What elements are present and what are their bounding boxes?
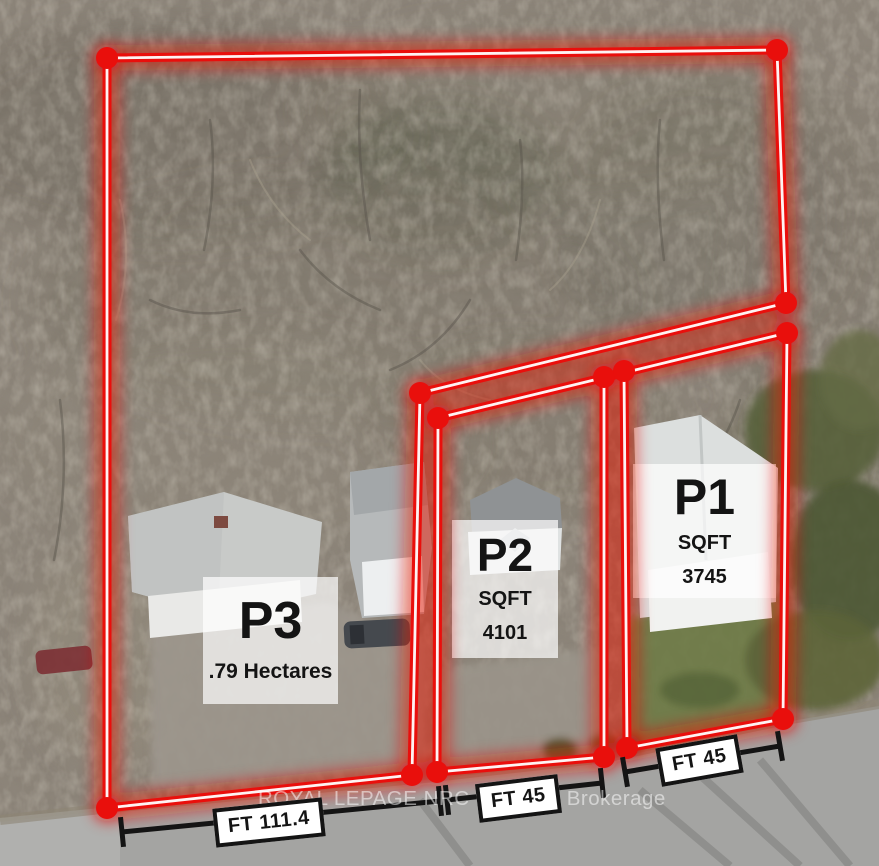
parcel-p1-value: 3745 xyxy=(682,565,727,590)
parcel-p2-title: P2 xyxy=(477,532,533,578)
chimney xyxy=(214,516,228,528)
parcel-label-p3: P3 .79 Hectares xyxy=(203,577,338,704)
parcel-p1-title: P1 xyxy=(674,472,735,522)
house-middle xyxy=(350,462,432,618)
parcel-p3-title: P3 xyxy=(239,595,303,647)
parcel-p2-value: 4101 xyxy=(483,621,528,646)
aerial-parcel-photo: P3 .79 Hectares P2 SQFT 4101 P1 SQFT 374… xyxy=(0,0,879,866)
parcel-label-p1: P1 SQFT 3745 xyxy=(633,464,776,598)
parcel-p1-unit: SQFT xyxy=(678,531,731,556)
aerial-photo-background xyxy=(0,0,879,866)
parcel-p2-unit: SQFT xyxy=(478,587,531,612)
parcel-label-p2: P2 SQFT 4101 xyxy=(452,520,558,658)
parcel-p3-area: .79 Hectares xyxy=(209,659,333,685)
car-suv xyxy=(343,618,410,648)
